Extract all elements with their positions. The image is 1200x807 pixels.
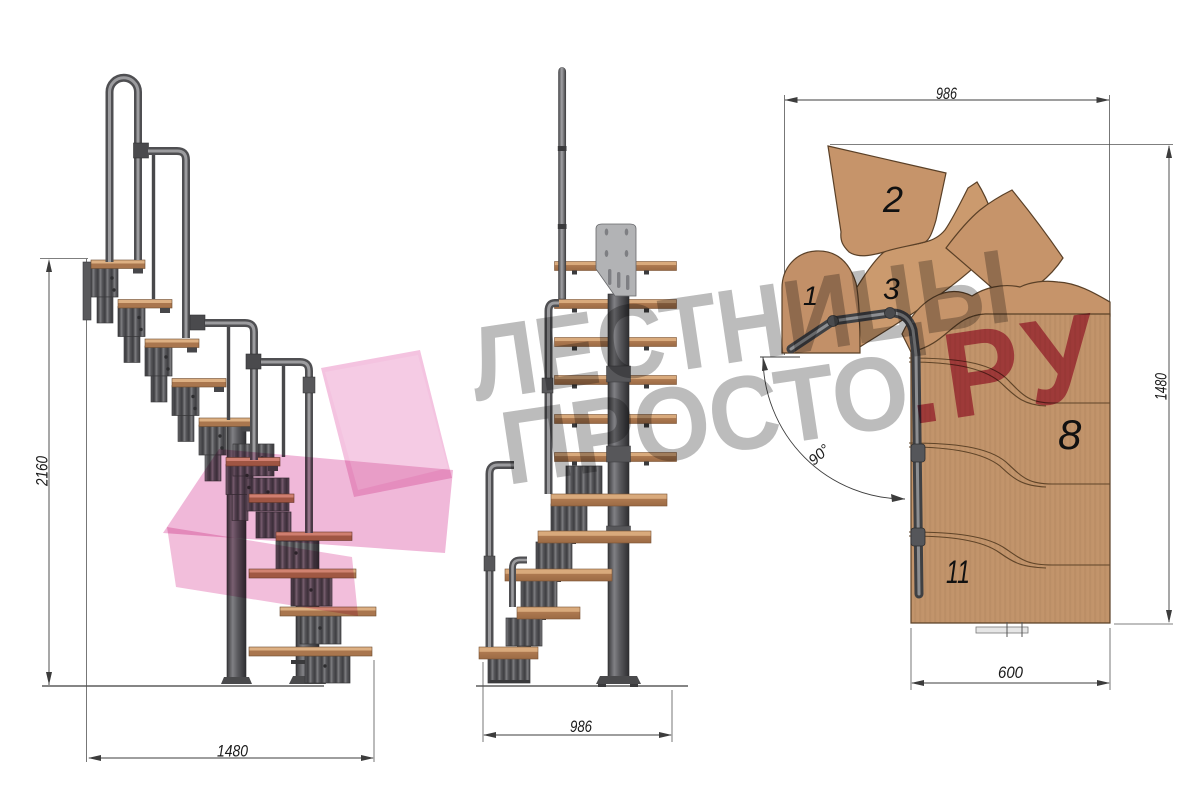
svg-text:2160: 2160 <box>33 456 52 487</box>
svg-text:986: 986 <box>936 84 957 103</box>
svg-text:2: 2 <box>882 179 903 220</box>
svg-text:986: 986 <box>570 717 592 736</box>
svg-text:1480: 1480 <box>217 742 248 761</box>
svg-text:11: 11 <box>946 554 970 590</box>
svg-text:1480: 1480 <box>1152 373 1171 400</box>
svg-text:600: 600 <box>998 663 1023 682</box>
